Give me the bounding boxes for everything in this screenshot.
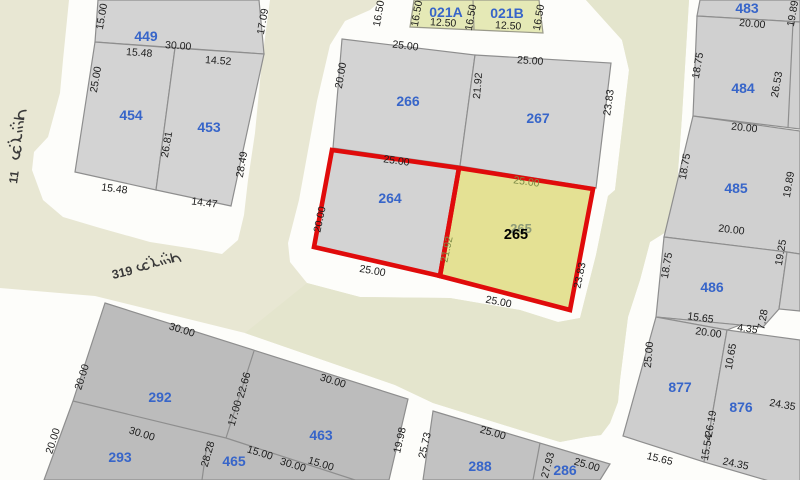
svg-text:486: 486	[700, 279, 724, 295]
svg-text:877: 877	[668, 379, 692, 395]
svg-text:293: 293	[108, 449, 132, 465]
svg-text:449: 449	[134, 28, 158, 44]
svg-text:264: 264	[378, 190, 402, 206]
svg-text:292: 292	[148, 389, 172, 405]
svg-text:21.92: 21.92	[471, 72, 485, 99]
svg-text:14.52: 14.52	[205, 54, 232, 68]
svg-text:30.00: 30.00	[165, 39, 192, 53]
svg-text:20.00: 20.00	[739, 17, 766, 31]
svg-text:463: 463	[309, 427, 333, 443]
svg-text:485: 485	[724, 180, 748, 196]
svg-text:267: 267	[526, 110, 550, 126]
svg-text:288: 288	[468, 458, 492, 474]
svg-text:453: 453	[197, 119, 221, 135]
svg-text:265: 265	[504, 227, 528, 243]
svg-text:483: 483	[735, 0, 759, 16]
svg-text:266: 266	[396, 93, 420, 109]
svg-text:25.00: 25.00	[517, 54, 544, 68]
svg-text:484: 484	[731, 80, 755, 96]
svg-text:15.48: 15.48	[126, 46, 153, 60]
svg-text:465: 465	[222, 453, 246, 469]
svg-text:11: 11	[6, 170, 22, 185]
svg-text:454: 454	[119, 107, 143, 123]
svg-text:876: 876	[729, 399, 753, 415]
svg-text:12.50: 12.50	[430, 16, 457, 29]
svg-text:12.50: 12.50	[495, 19, 522, 32]
svg-text:25.00: 25.00	[642, 341, 656, 368]
